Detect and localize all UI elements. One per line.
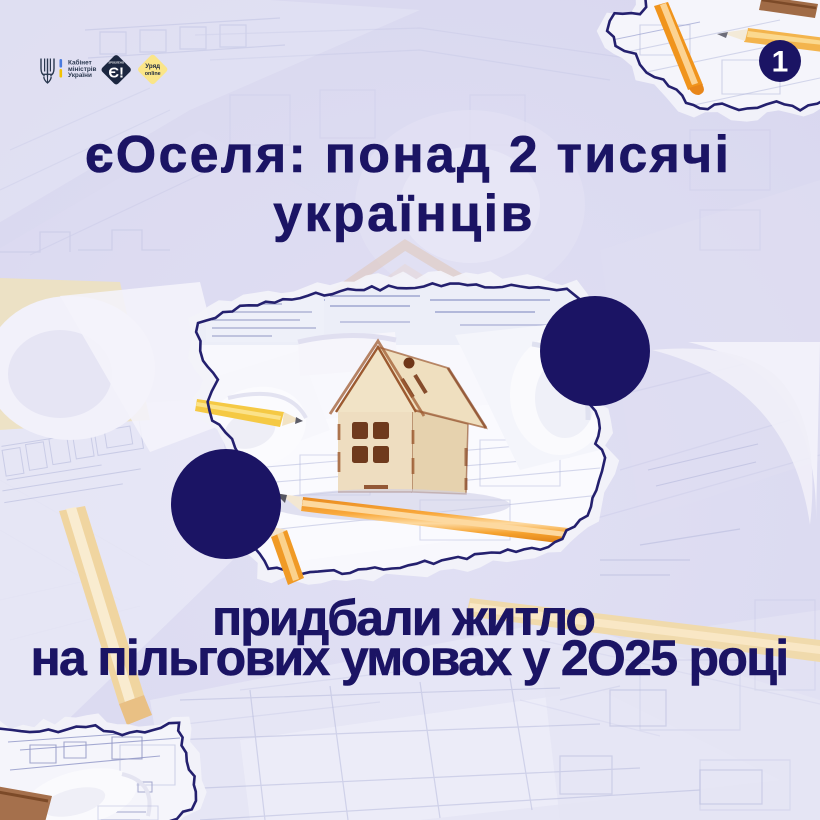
svg-text:online: online [145,71,161,77]
svg-text:Є!: Є! [108,65,124,82]
svg-text:України: України [68,72,92,79]
svg-text:Уряд: Уряд [145,63,160,70]
svg-text:1: 1 [772,46,789,79]
